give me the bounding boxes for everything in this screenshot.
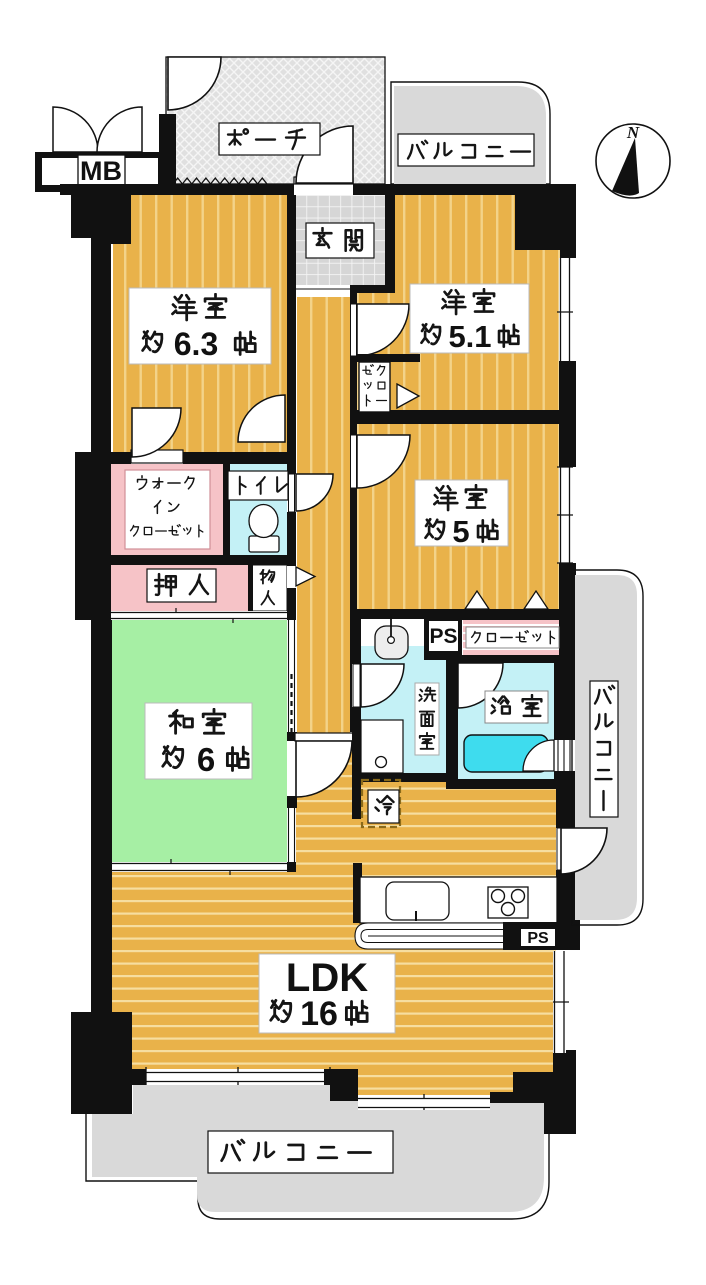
svg-text:6: 6 bbox=[197, 741, 215, 778]
svg-text:LDK: LDK bbox=[286, 956, 368, 1000]
svg-text:5: 5 bbox=[452, 514, 469, 549]
svg-text:MB: MB bbox=[80, 156, 122, 186]
svg-text:N: N bbox=[626, 123, 640, 142]
svg-text:PS: PS bbox=[527, 930, 549, 947]
svg-text:PS: PS bbox=[429, 625, 457, 648]
svg-text:5.1: 5.1 bbox=[448, 319, 491, 354]
svg-text:16: 16 bbox=[300, 995, 338, 1033]
svg-text:6.3: 6.3 bbox=[174, 326, 218, 362]
